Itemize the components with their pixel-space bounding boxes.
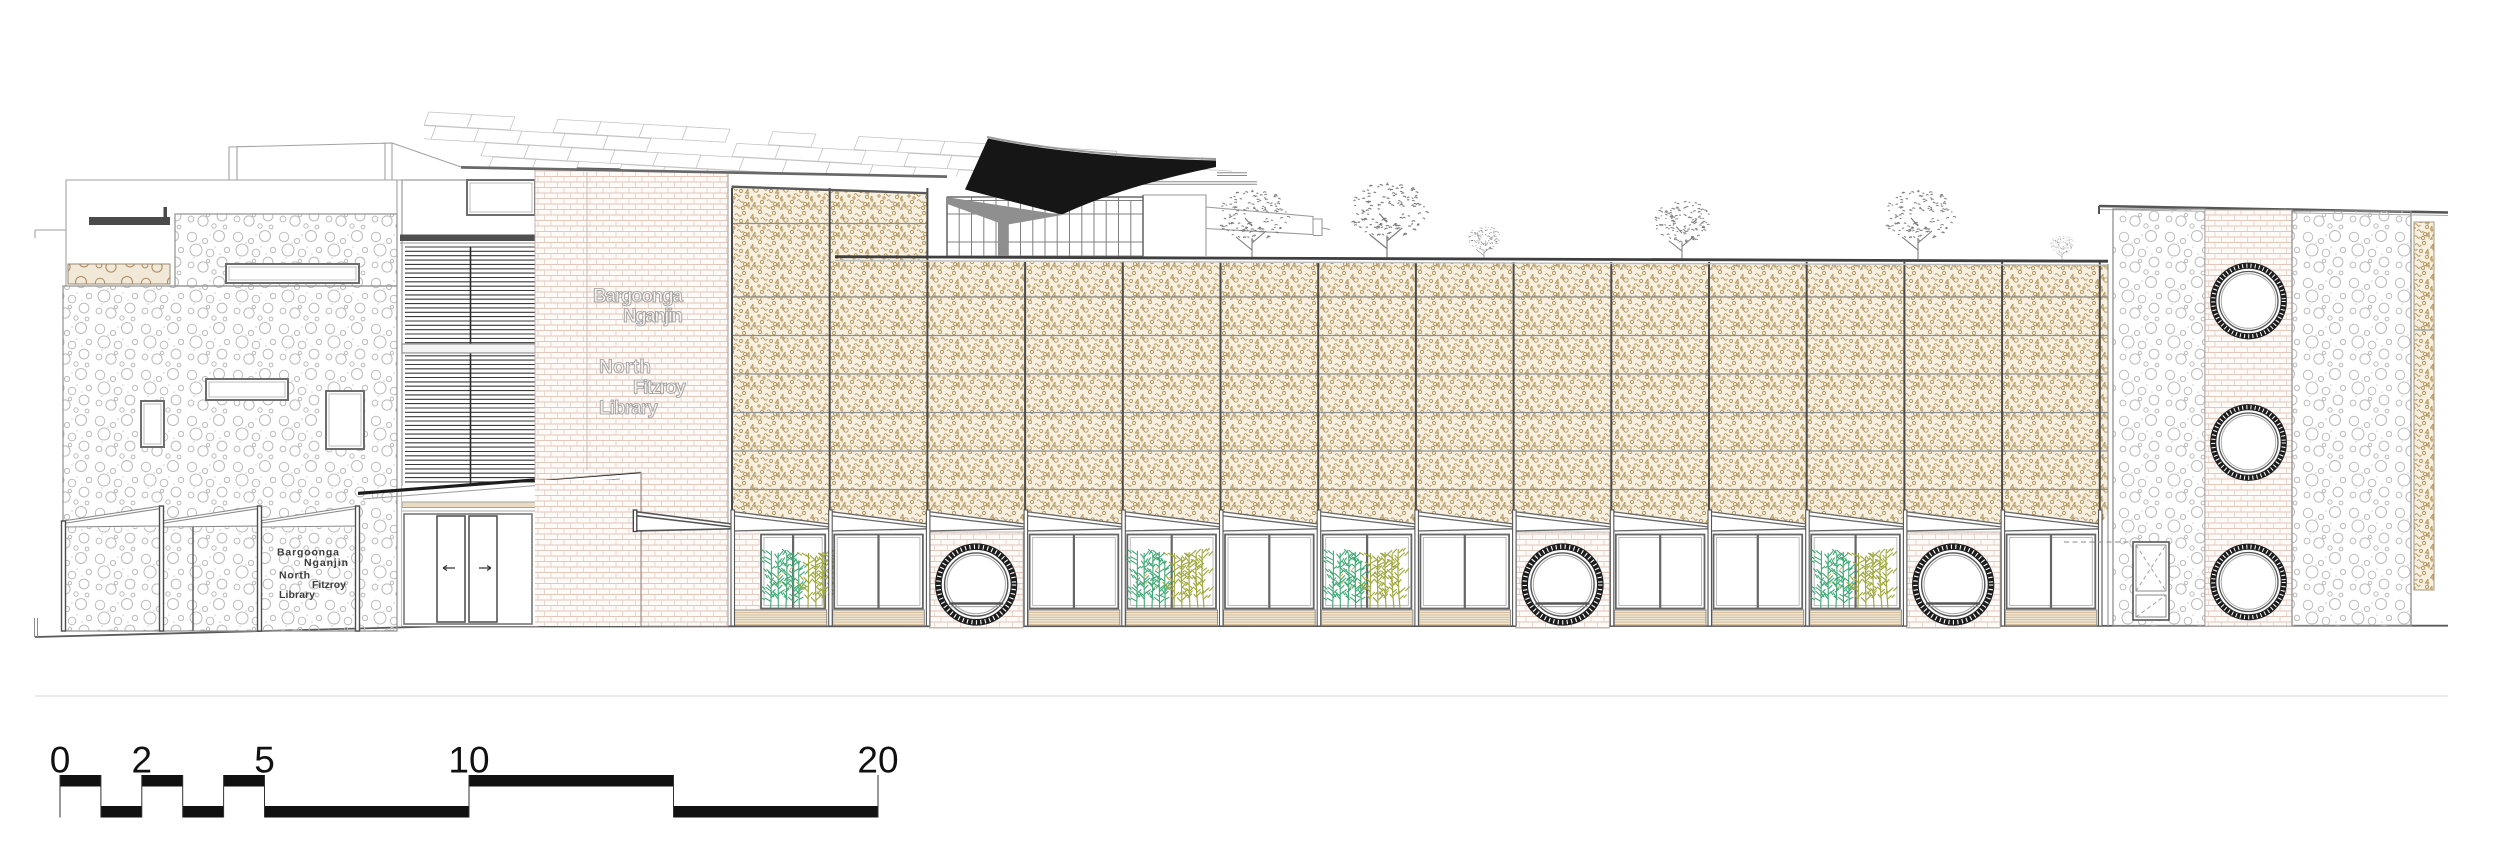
svg-text:5: 5 [254,740,275,781]
svg-text:Fitzroy: Fitzroy [633,378,687,399]
svg-text:2: 2 [132,740,153,781]
svg-text:North: North [599,357,652,378]
svg-text:10: 10 [448,740,489,781]
svg-text:Library: Library [599,398,659,419]
svg-text:North: North [279,570,310,582]
svg-text:20: 20 [857,740,898,781]
svg-text:Bargoonga: Bargoonga [593,286,684,307]
svg-text:Nganjin: Nganjin [304,557,348,569]
svg-text:Fitzroy: Fitzroy [312,579,346,591]
svg-text:0: 0 [50,740,71,781]
svg-text:Library: Library [279,589,315,601]
svg-text:Nganjin: Nganjin [623,306,684,327]
